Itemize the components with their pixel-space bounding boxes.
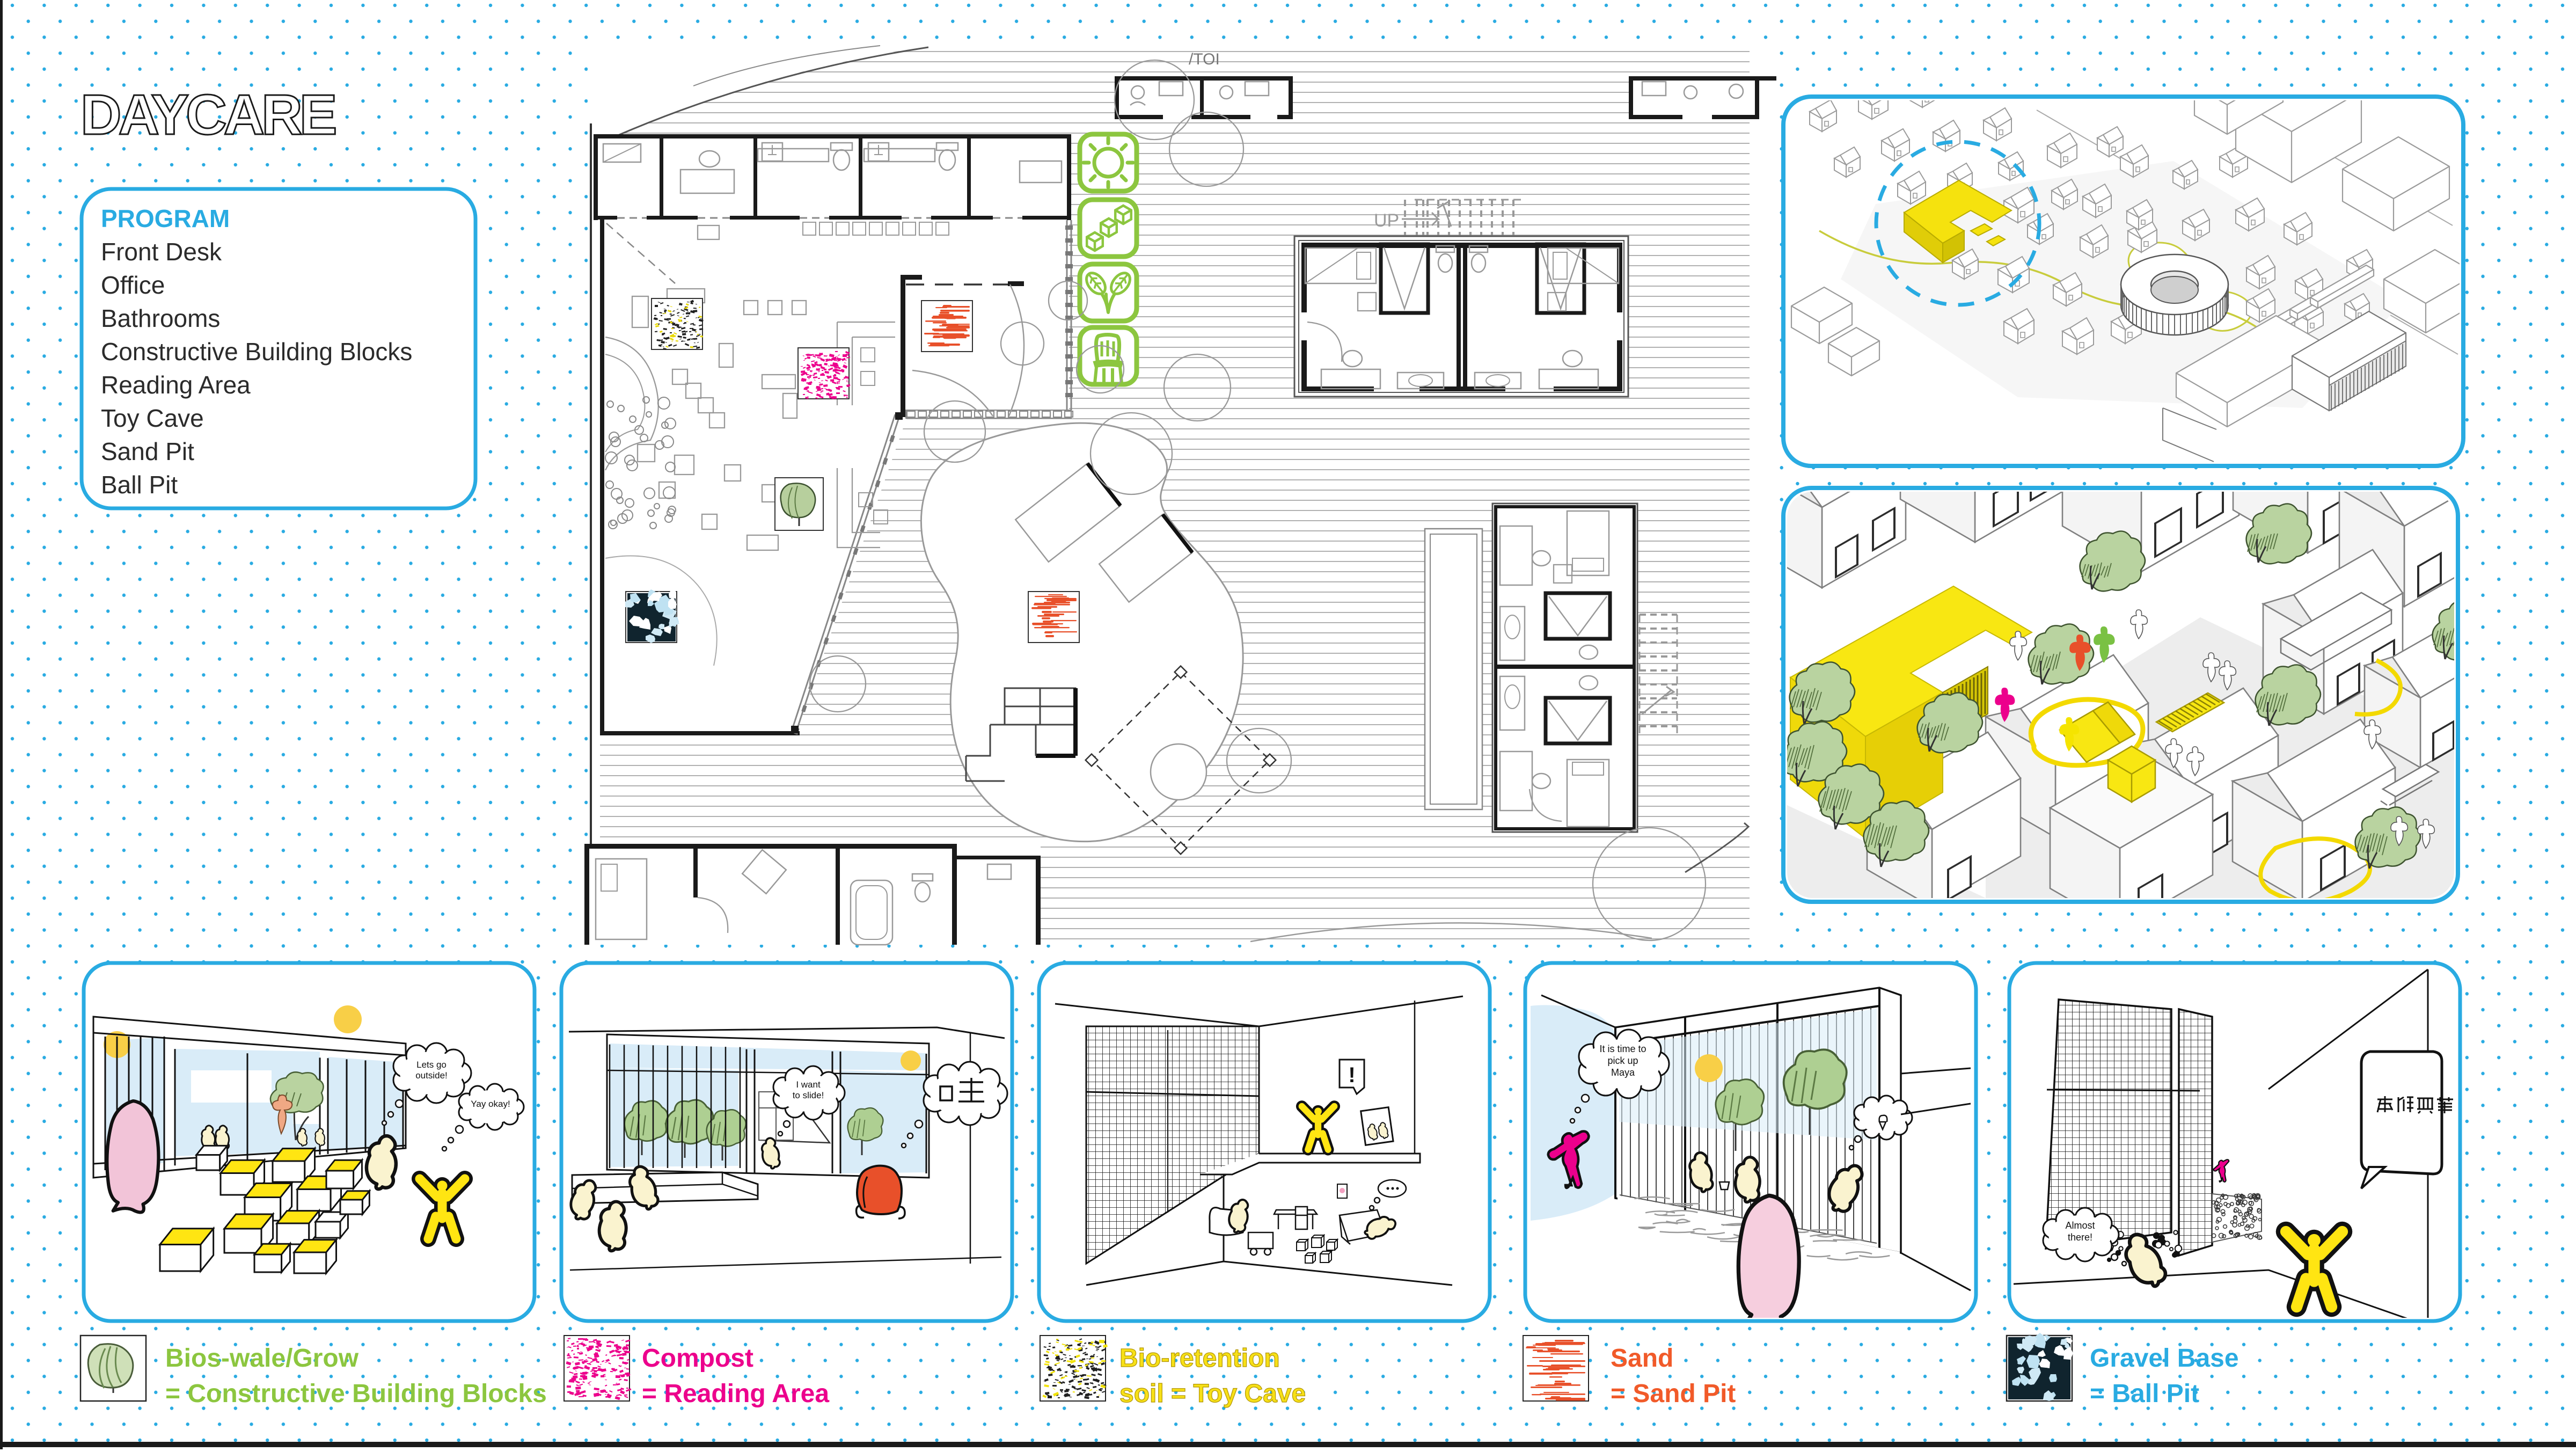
svg-text:Bathrooms: Bathrooms [101,304,220,332]
svg-text:UP: UP [1374,210,1399,231]
svg-text:It is time to: It is time to [1599,1044,1646,1054]
svg-text:there!: there! [2068,1232,2092,1243]
svg-text:= Sand Pit: = Sand Pit [1611,1380,1736,1408]
svg-text:Almost: Almost [2065,1220,2095,1231]
svg-text:= Constructive Building Blocks: = Constructive Building Blocks [165,1380,547,1408]
svg-text:Reading Area: Reading Area [101,371,251,399]
svg-text:= Ball Pit: = Ball Pit [2090,1380,2199,1408]
svg-text:Toy Cave: Toy Cave [101,404,204,432]
svg-text:outside!: outside! [415,1070,448,1081]
svg-text:Bio-retention: Bio-retention [1119,1344,1280,1373]
svg-text:Lets go: Lets go [416,1060,447,1070]
svg-text:soil = Toy Cave: soil = Toy Cave [1119,1380,1306,1408]
svg-text:= Reading Area: = Reading Area [642,1380,829,1408]
svg-text:Constructive Building Blocks: Constructive Building Blocks [101,338,412,366]
svg-text:Ball Pit: Ball Pit [101,471,178,499]
svg-text:Compost: Compost [642,1344,753,1373]
svg-text:/TOI: /TOI [1189,50,1220,68]
svg-text:I want: I want [796,1079,821,1090]
svg-text:Gravel Base: Gravel Base [2090,1344,2239,1373]
svg-text:!: ! [1348,1063,1355,1087]
svg-text:Bios-wale/Grow: Bios-wale/Grow [165,1344,359,1373]
svg-text:Sand Pit: Sand Pit [101,437,194,465]
svg-text:Sand: Sand [1611,1344,1673,1373]
svg-text:PROGRAM: PROGRAM [101,205,230,232]
svg-text:pick up: pick up [1607,1055,1638,1066]
svg-text:Yay okay!: Yay okay! [471,1099,510,1109]
svg-text:Maya: Maya [1611,1067,1635,1078]
svg-text:Front Desk: Front Desk [101,238,222,266]
svg-text:Office: Office [101,271,165,299]
svg-text:DAYCARE: DAYCARE [80,83,335,147]
svg-text:to slide!: to slide! [793,1090,824,1100]
